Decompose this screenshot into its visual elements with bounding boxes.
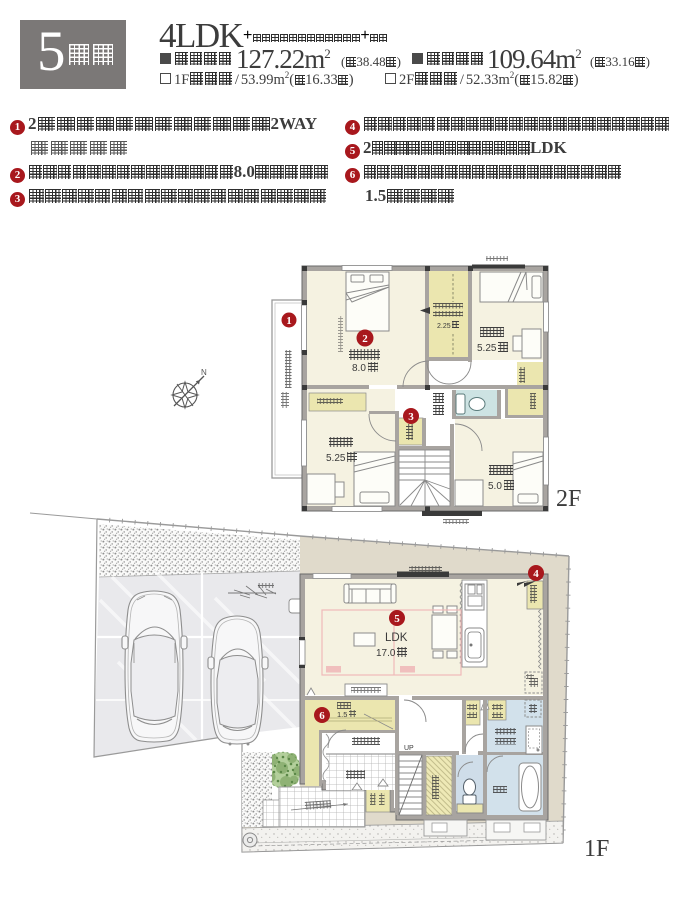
svg-text:LDK: LDK (385, 632, 408, 644)
svg-text:5: 5 (394, 613, 400, 625)
svg-text:2: 2 (362, 333, 368, 345)
svg-text:4: 4 (533, 568, 539, 580)
svg-text:1F: 1F (584, 836, 609, 862)
svg-text:17.0: 17.0 (376, 648, 396, 659)
svg-text:6: 6 (319, 710, 325, 722)
svg-text:5.25: 5.25 (326, 453, 346, 464)
svg-text:5.0: 5.0 (488, 481, 502, 492)
svg-text:2.25: 2.25 (437, 323, 451, 330)
svg-text:1.5: 1.5 (337, 710, 347, 719)
svg-text:8.0: 8.0 (352, 363, 366, 374)
svg-text:1: 1 (286, 315, 292, 327)
svg-text:2F: 2F (556, 486, 581, 512)
svg-text:N: N (201, 368, 207, 377)
svg-text:5.25: 5.25 (477, 343, 497, 354)
svg-text:UP: UP (404, 745, 414, 752)
svg-text:3: 3 (408, 411, 414, 423)
